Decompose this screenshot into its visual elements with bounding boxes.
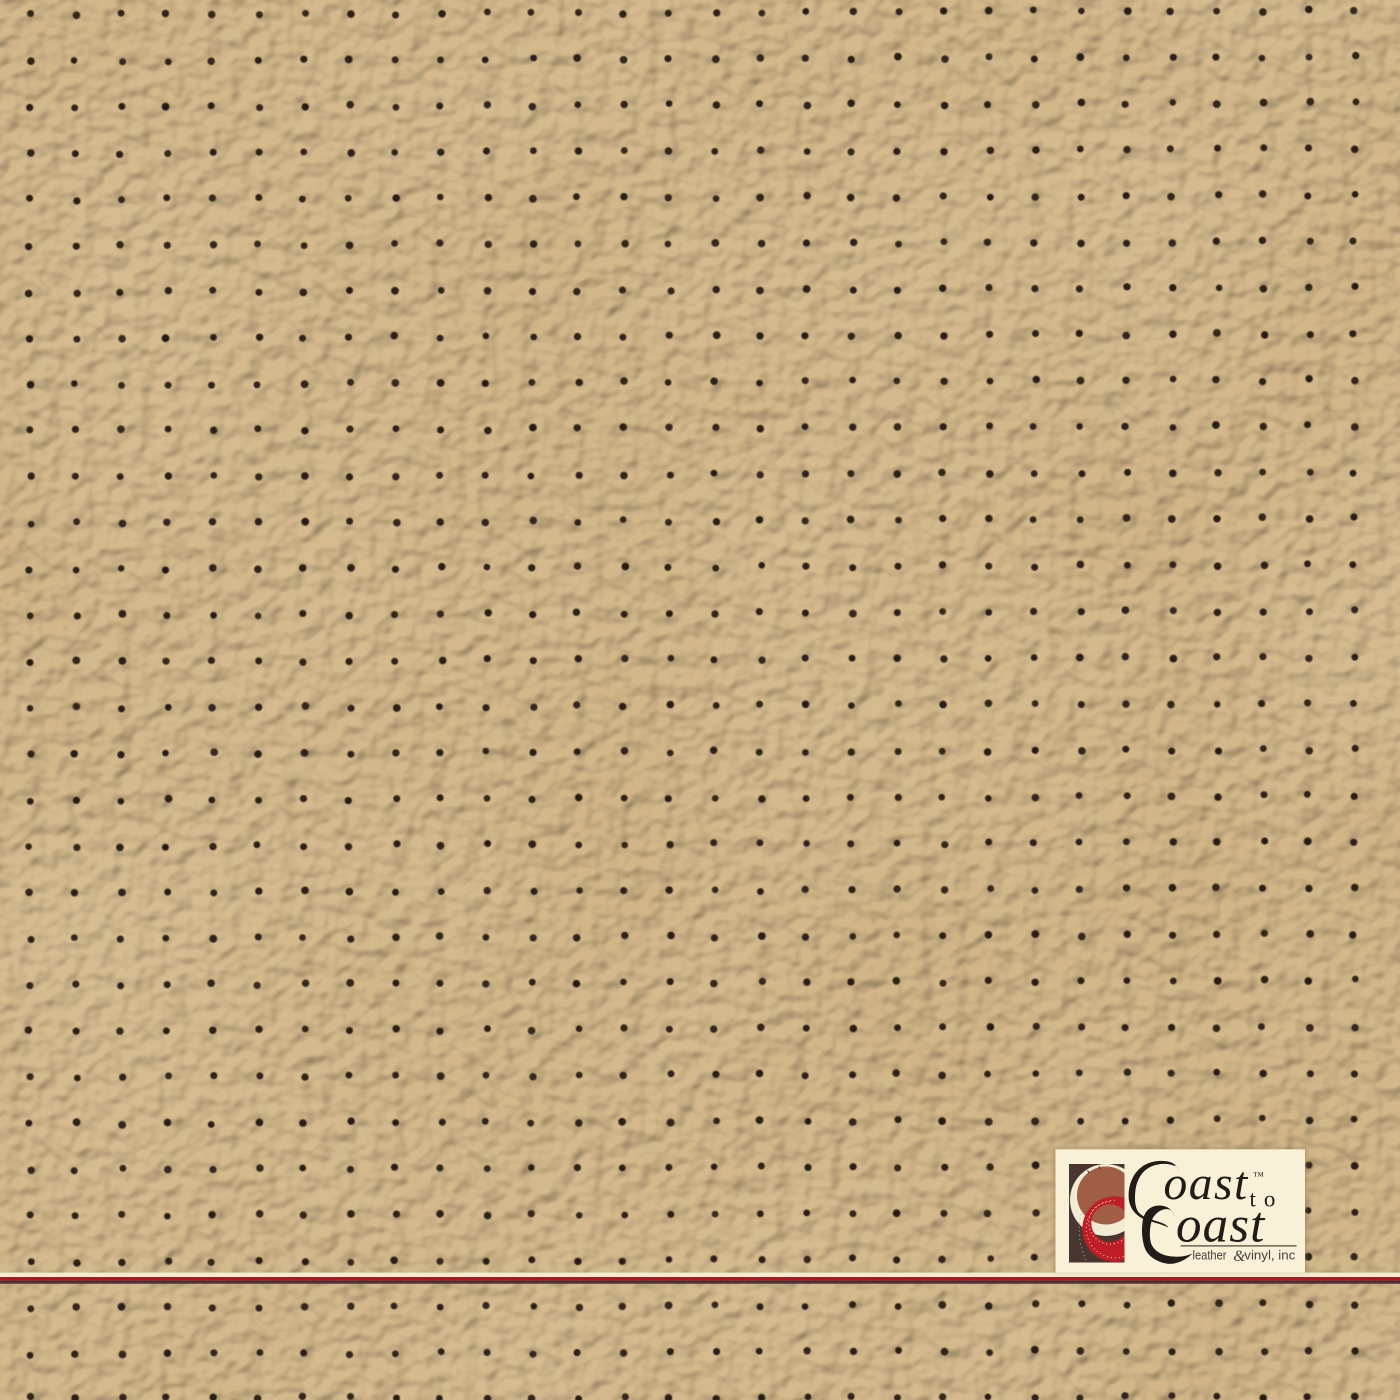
svg-text:leather: leather bbox=[1193, 1247, 1228, 1262]
svg-text:vinyl, inc: vinyl, inc bbox=[1244, 1247, 1296, 1262]
svg-text:oast: oast bbox=[1176, 1198, 1266, 1254]
svg-text:™: ™ bbox=[1253, 1171, 1264, 1183]
